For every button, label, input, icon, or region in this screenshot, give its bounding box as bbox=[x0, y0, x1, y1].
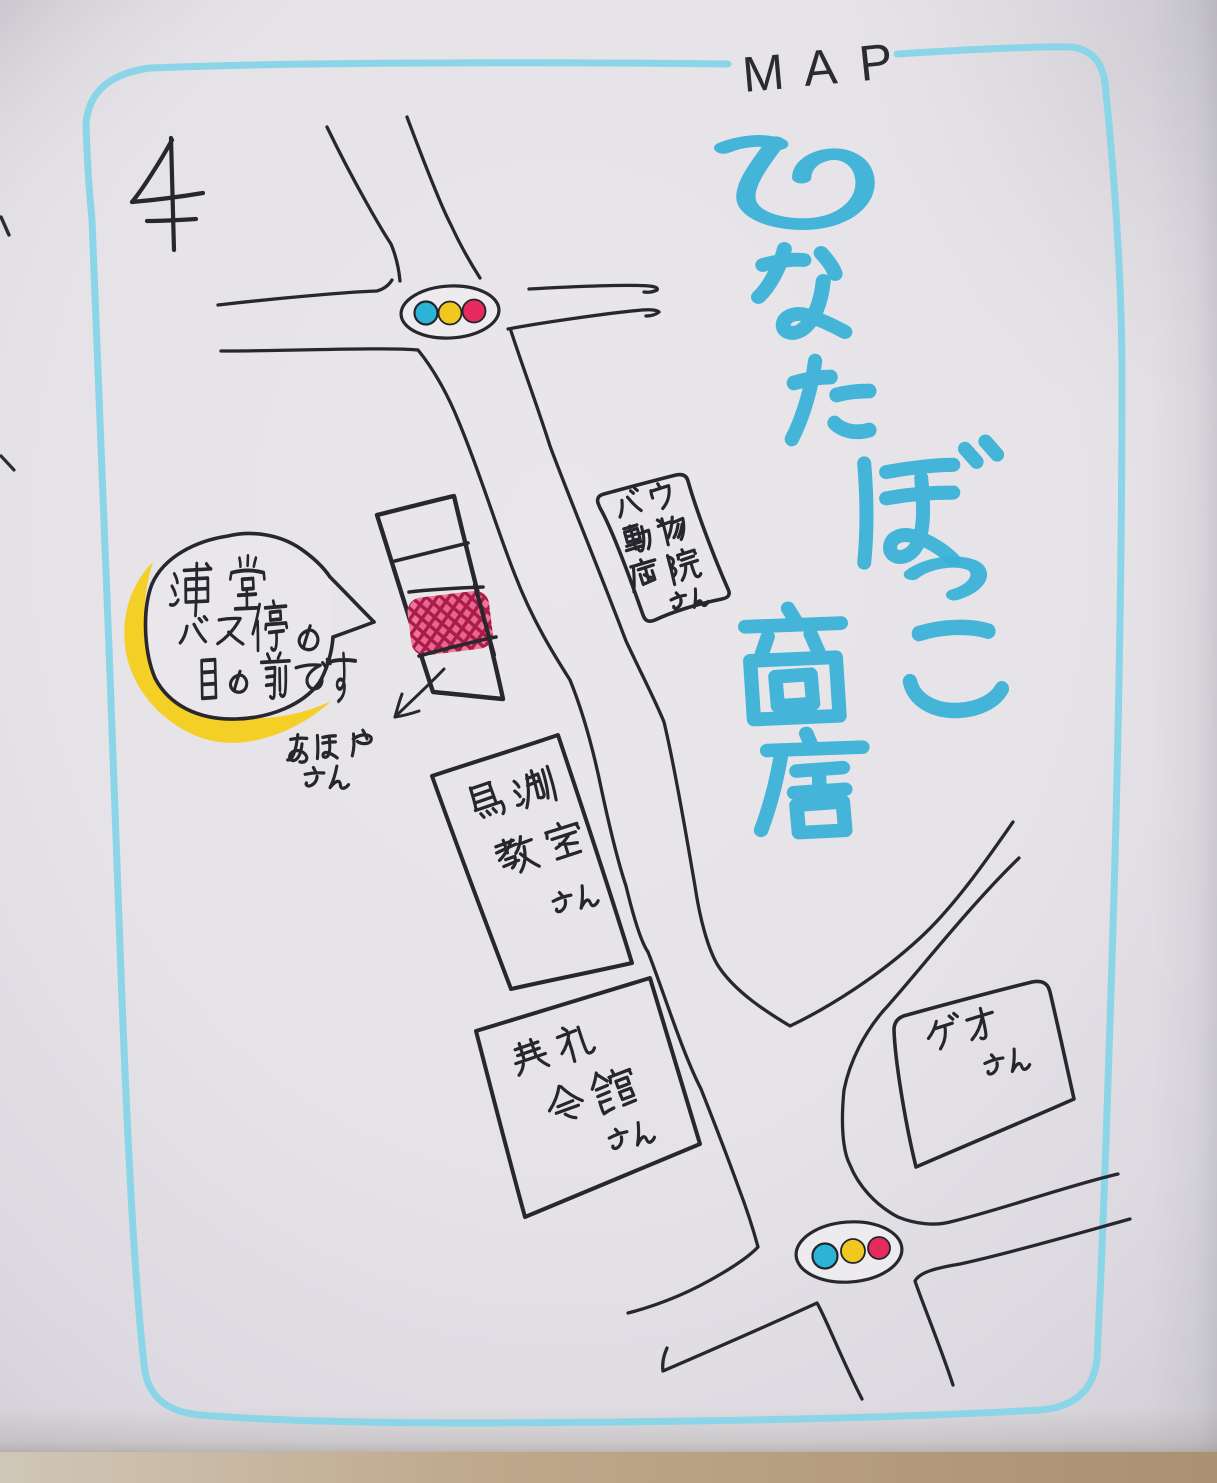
svg-text:P: P bbox=[856, 33, 895, 92]
svg-text:A: A bbox=[801, 38, 840, 97]
svg-text:M: M bbox=[740, 44, 786, 103]
